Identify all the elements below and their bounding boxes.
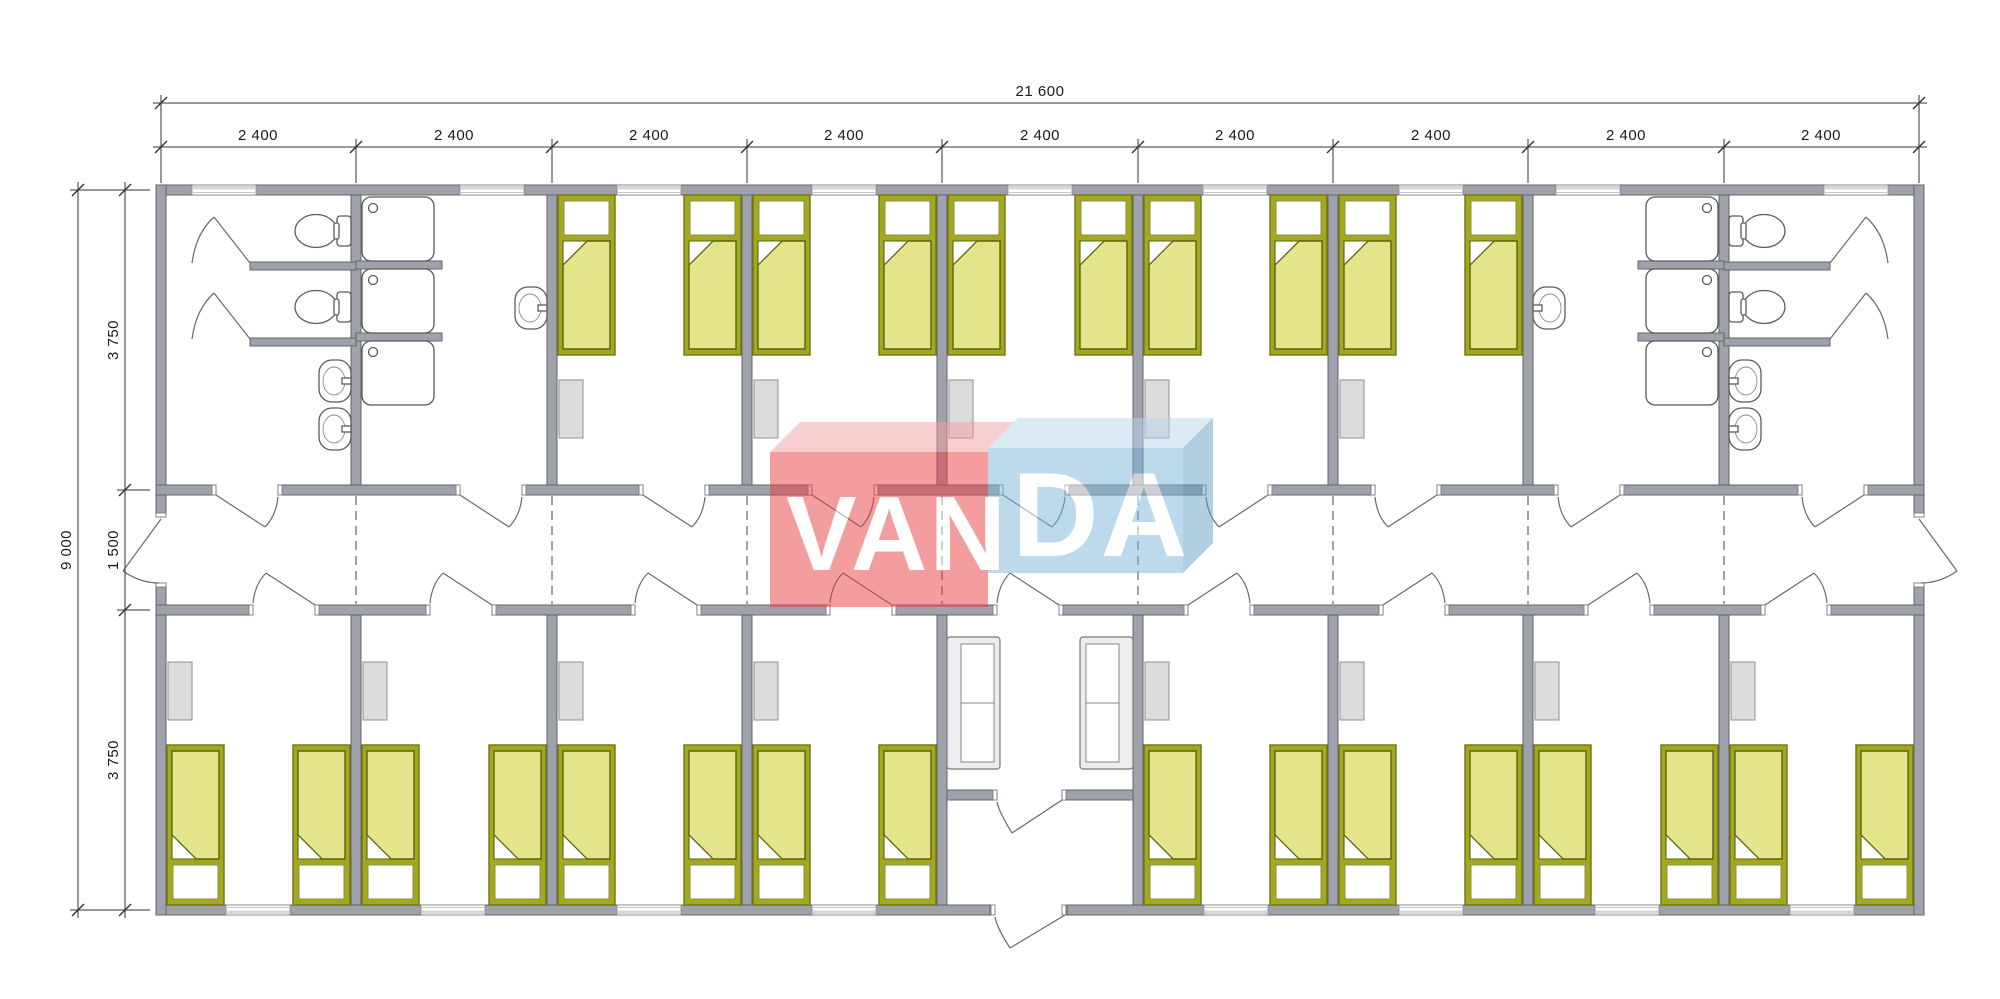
- window-symbol: [421, 905, 485, 915]
- bed-symbol: [489, 745, 546, 905]
- beds-bottom-row: [167, 745, 1913, 905]
- bed-symbol: [1270, 195, 1327, 355]
- dim-total-width: 21 600: [1016, 83, 1065, 100]
- window-symbol: [1595, 905, 1659, 915]
- window-symbol: [1790, 905, 1854, 915]
- bed-symbol: [1075, 195, 1132, 355]
- bed-symbol: [879, 195, 936, 355]
- dim-module: 2 400: [1606, 127, 1646, 144]
- sanitary-fixtures: [295, 197, 1785, 450]
- bed-symbol: [558, 745, 615, 905]
- window-symbol: [1399, 905, 1463, 915]
- bed-symbol: [1144, 195, 1201, 355]
- bed-symbol: [879, 745, 936, 905]
- bed-symbol: [1856, 745, 1913, 905]
- floor-plan-canvas: 21 600 2 400 2 400 2 400 2 400 2 400 2 4…: [0, 0, 2000, 999]
- door-swing: [1371, 485, 1441, 527]
- bed-symbol: [684, 195, 741, 355]
- bed-symbol: [1339, 745, 1396, 905]
- window-symbol: [812, 905, 876, 915]
- bed-symbol: [1661, 745, 1718, 905]
- bed-symbol: [948, 195, 1005, 355]
- window-symbol: [812, 185, 876, 195]
- shower-symbol: [1646, 269, 1718, 333]
- dim-module: 2 400: [238, 127, 278, 144]
- window-symbol: [192, 185, 256, 195]
- wardrobe-symbol: [1535, 662, 1559, 720]
- dim-corridor: 1 500: [105, 530, 122, 570]
- dim-module: 2 400: [1411, 127, 1451, 144]
- wardrobe-symbol: [1340, 662, 1364, 720]
- sink-symbol: [319, 408, 351, 450]
- wardrobe-symbol: [559, 380, 583, 438]
- window-symbol: [1824, 185, 1888, 195]
- bed-symbol: [1465, 745, 1522, 905]
- door-swing: [456, 485, 526, 527]
- door-swing: [426, 573, 496, 615]
- dim-module: 2 400: [434, 127, 474, 144]
- shower-symbol: [362, 197, 434, 261]
- window-symbol: [226, 905, 290, 915]
- dim-module: 2 400: [1801, 127, 1841, 144]
- door-swing: [1554, 485, 1624, 527]
- bed-symbol: [753, 745, 810, 905]
- shower-symbol: [1646, 197, 1718, 261]
- lobby-sofas: [947, 637, 1133, 769]
- logo-blue-box-top: [988, 418, 1213, 448]
- door-swing: [1379, 573, 1449, 615]
- window-symbol: [617, 905, 681, 915]
- bed-symbol: [558, 195, 615, 355]
- bed-symbol: [167, 745, 224, 905]
- door-swing: [639, 485, 709, 527]
- bed-symbol: [1534, 745, 1591, 905]
- window-symbol: [1203, 185, 1267, 195]
- sink-symbol: [319, 360, 351, 402]
- floor-plan-drawing: 21 600 2 400 2 400 2 400 2 400 2 400 2 4…: [0, 0, 2000, 999]
- shower-symbol: [362, 341, 434, 405]
- bed-symbol: [293, 745, 350, 905]
- wardrobe-symbol: [754, 380, 778, 438]
- entrance-doors: [991, 790, 1066, 948]
- wardrobe-symbol: [363, 662, 387, 720]
- dim-module: 2 400: [1215, 127, 1255, 144]
- dim-module: 2 400: [1020, 127, 1060, 144]
- toilet-symbol: [295, 291, 351, 324]
- brand-watermark: VAN DA: [770, 418, 1213, 607]
- bed-symbol: [362, 745, 419, 905]
- logo-red-box-top: [770, 422, 1018, 452]
- sofa-symbol: [1080, 637, 1133, 769]
- sofa-symbol: [947, 637, 1000, 769]
- toilet-symbol: [1729, 291, 1785, 324]
- dim-bottom-row: 3 750: [105, 740, 122, 780]
- sink-symbol: [1729, 360, 1761, 402]
- window-symbol: [1399, 185, 1463, 195]
- door-swing: [212, 485, 282, 527]
- wardrobe-symbol: [754, 662, 778, 720]
- door-swing: [1798, 485, 1868, 527]
- sink-symbol: [515, 287, 547, 329]
- bed-symbol: [1465, 195, 1522, 355]
- wardrobe-symbol: [1731, 662, 1755, 720]
- window-symbol: [460, 185, 524, 195]
- sink-symbol: [1729, 408, 1761, 450]
- wardrobe-symbol: [1340, 380, 1364, 438]
- door-swing: [249, 573, 319, 615]
- window-symbol: [1556, 185, 1620, 195]
- bed-symbol: [1144, 745, 1201, 905]
- logo-text-da: DA: [1012, 448, 1189, 582]
- wardrobe-symbol: [559, 662, 583, 720]
- wardrobe-symbol: [1145, 662, 1169, 720]
- bed-symbol: [684, 745, 741, 905]
- window-symbol: [1204, 905, 1268, 915]
- toilet-symbol: [1729, 215, 1785, 248]
- dim-top-row: 3 750: [105, 320, 122, 360]
- dim-module: 2 400: [629, 127, 669, 144]
- door-swing: [1584, 573, 1654, 615]
- shower-symbol: [1646, 341, 1718, 405]
- bed-symbol: [1730, 745, 1787, 905]
- door-swing: [631, 573, 701, 615]
- window-symbol: [1008, 185, 1072, 195]
- logo-text-van: VAN: [786, 475, 1008, 593]
- shower-symbol: [362, 269, 434, 333]
- window-symbol: [617, 185, 681, 195]
- sink-symbol: [1533, 287, 1565, 329]
- dim-total-height: 9 000: [58, 530, 75, 570]
- toilet-symbol: [295, 215, 351, 248]
- dim-module: 2 400: [824, 127, 864, 144]
- door-swing: [1184, 573, 1254, 615]
- bed-symbol: [753, 195, 810, 355]
- beds-top-row: [558, 195, 1522, 355]
- door-swing: [1761, 573, 1831, 615]
- bed-symbol: [1339, 195, 1396, 355]
- bed-symbol: [1270, 745, 1327, 905]
- wardrobe-symbol: [168, 662, 192, 720]
- wc-stall-doors: [192, 217, 1888, 339]
